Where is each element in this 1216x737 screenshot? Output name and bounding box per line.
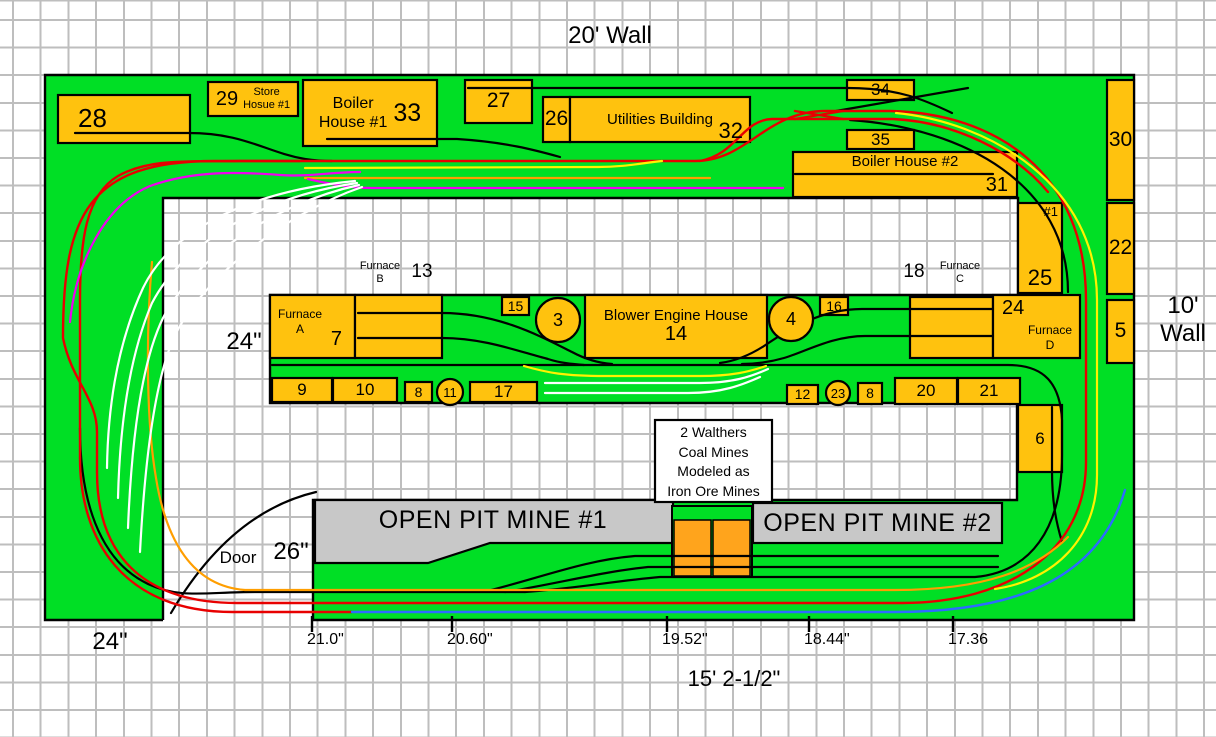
door-width-label: 26" [264, 538, 318, 566]
door-label: Door [212, 548, 264, 568]
building-label-16: 16 [820, 297, 848, 315]
track-plan: 2829Store Hosue #1Boiler House #1332726U… [0, 0, 1216, 737]
building-number: 14 [665, 324, 687, 345]
building-name: Blower Engine House [604, 308, 748, 324]
building-name: Boiler House #2 [852, 154, 959, 170]
building-label-21: 21 [958, 378, 1020, 404]
building-name: Furnace A [278, 307, 322, 337]
building-label-27: 27 [465, 80, 532, 123]
building-name: Furnace D [1028, 323, 1072, 353]
building-label-20: 20 [895, 378, 957, 404]
left-width-label: 24" [82, 628, 138, 656]
building-label-5: 5 [1107, 300, 1134, 363]
measurement-label-4: 17.36 [948, 631, 988, 649]
building-label-22: 22 [1107, 203, 1134, 294]
building-label-8a: 8 [405, 382, 432, 402]
building-number: 7 [331, 329, 342, 350]
wall-top-label: 20' Wall [540, 22, 680, 50]
building-label-15: 15 [502, 297, 529, 315]
open-pit-mine-1-label: OPEN PIT MINE #1 [328, 506, 658, 535]
bottom-dimension-label: 15' 2-1/2" [664, 666, 804, 691]
furnace-c-caption: Furnace C [932, 260, 988, 285]
wall-right-label: 10' Wall [1152, 292, 1214, 347]
building-number: 31 [986, 175, 1008, 196]
circle-label-23: 23 [826, 381, 850, 405]
building-name: Store Hosue #1 [243, 86, 290, 112]
circle-label-stove-3: 3 [536, 298, 580, 342]
building-label-8b: 8 [858, 383, 882, 404]
building-number: 24 [1002, 298, 1024, 319]
building-label-12: 12 [787, 385, 818, 404]
measurement-label-3: 18.44" [804, 631, 850, 649]
building-number: 33 [393, 100, 421, 126]
circle-label-stove-4: 4 [769, 297, 813, 341]
furnace-c-number: 18 [896, 261, 932, 283]
building-number: 29 [216, 89, 238, 110]
building-name: #1 [1044, 205, 1058, 219]
building-name: Utilities Building [607, 112, 713, 128]
building-label-26: 26 [543, 97, 570, 142]
building-label-boiler-house-1: Boiler House #133 [303, 80, 437, 146]
building-label-blower-engine-house: Blower Engine House14 [585, 295, 767, 358]
building-label-stock-house-1: #125 [1018, 203, 1062, 293]
building-label-35: 35 [847, 130, 914, 149]
building-label-utilities-building: Utilities Building32 [570, 97, 750, 142]
building-number: 25 [1018, 266, 1062, 289]
building-label-9: 9 [272, 378, 332, 402]
note-box-text: 2 Walthers Coal Mines Modeled as Iron Or… [655, 423, 772, 501]
building-label-17: 17 [470, 382, 537, 402]
building-label-boiler-house-2: Boiler House #231 [793, 152, 1017, 197]
measurement-label-2: 19.52" [662, 631, 708, 649]
building-label-furnace-d: Furnace D24 [993, 295, 1080, 358]
open-pit-mine-2-label: OPEN PIT MINE #2 [753, 509, 1002, 538]
aisle-width-label: 24" [218, 328, 270, 356]
building-label-store-house-1: 29Store Hosue #1 [208, 82, 298, 116]
building-label-6: 6 [1018, 405, 1062, 472]
building-label-furnace-a: Furnace A7 [270, 295, 355, 358]
circle-label-11: 11 [437, 379, 463, 405]
measurement-label-1: 20.60" [447, 631, 493, 649]
label-layer: 2829Store Hosue #1Boiler House #1332726U… [0, 0, 1216, 737]
building-label-30: 30 [1107, 80, 1134, 200]
building-label-28: 28 [58, 95, 190, 143]
building-label-34: 34 [847, 80, 914, 100]
building-number: 32 [719, 119, 743, 142]
measurement-label-0: 21.0" [307, 631, 344, 649]
furnace-b-caption: Furnace B [352, 260, 408, 285]
building-name: Boiler House #1 [319, 94, 388, 132]
furnace-b-number: 13 [404, 261, 440, 283]
building-label-10: 10 [333, 378, 397, 402]
